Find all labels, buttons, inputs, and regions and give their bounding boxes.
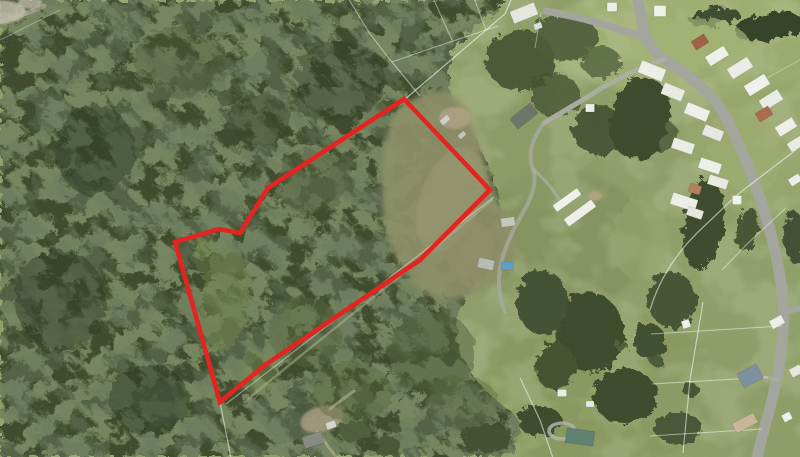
photo-grain — [0, 0, 800, 457]
aerial-map-screenshot — [0, 0, 800, 457]
aerial-photo-canvas — [0, 0, 800, 457]
